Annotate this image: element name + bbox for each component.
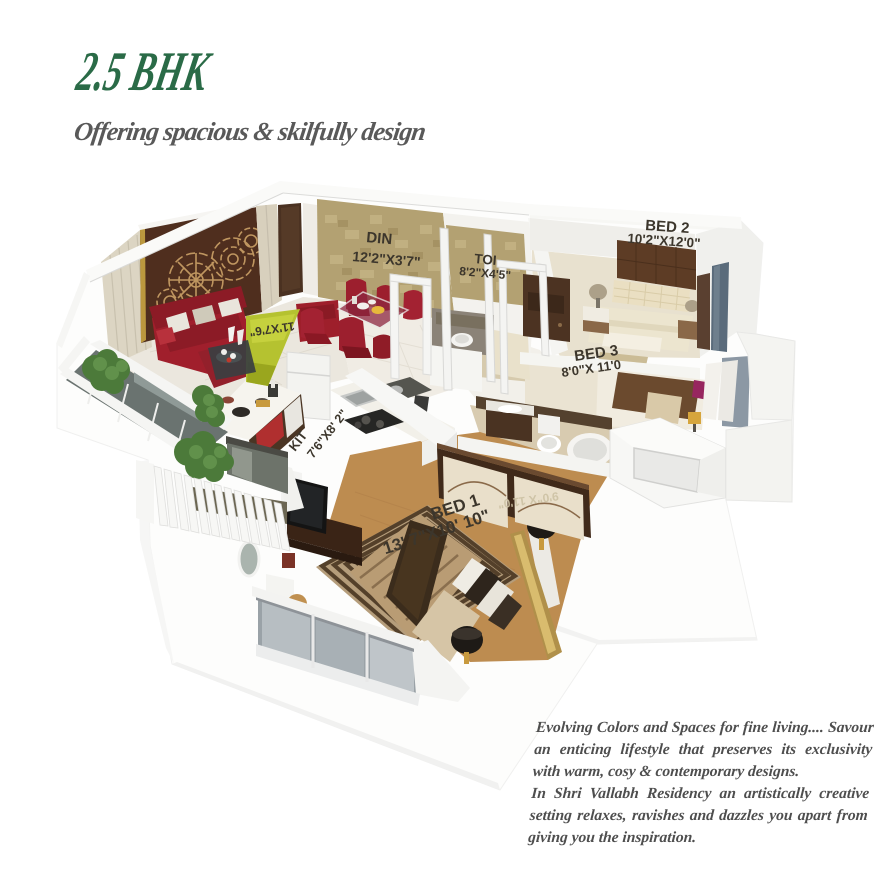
svg-text:DIN: DIN <box>366 229 393 248</box>
